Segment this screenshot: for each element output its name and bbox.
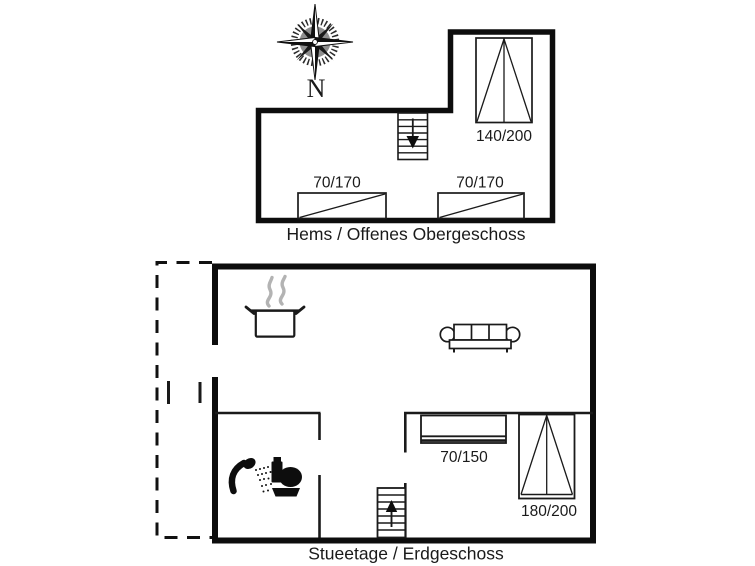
bed-size-label: 70/170 — [456, 175, 504, 192]
shower-spray-dots — [255, 466, 272, 493]
upper-floor-caption: Hems / Offenes Obergeschoss — [287, 224, 526, 244]
ground-floor-plan: 70/150 180/200 Stueetage / Erdgeschoss — [157, 263, 593, 564]
bed-double-180x200: 180/200 — [519, 415, 577, 521]
bed-single-right-70x170: 70/170 — [438, 175, 524, 219]
north-label: N — [307, 74, 326, 103]
bed-bunk-70x150: 70/150 — [421, 416, 506, 467]
steam-icon — [267, 277, 285, 307]
compass-cardinal-points — [277, 4, 353, 80]
toilet-icon — [272, 457, 303, 497]
compass-rose-icon: N — [277, 4, 353, 103]
bed-size-label: 70/170 — [313, 175, 361, 192]
floor-plan-drawing: N 140/200 — [0, 0, 755, 566]
sofa-icon — [440, 325, 519, 353]
door-opening-marks — [169, 381, 201, 404]
stairs-up — [378, 488, 406, 538]
floor-plan-page: N 140/200 — [0, 0, 755, 566]
ground-floor-caption: Stueetage / Erdgeschoss — [308, 544, 504, 564]
terrace-dashed-outline — [157, 263, 212, 538]
shower-icon — [232, 456, 272, 493]
upper-floor-plan: 140/200 70/170 70/170 Hems / Offenes Obe… — [259, 32, 553, 244]
bed-double-140x200: 140/200 — [476, 38, 532, 145]
bed-size-label: 140/200 — [476, 128, 532, 145]
bed-size-label: 70/150 — [440, 449, 488, 466]
bed-single-left-70x170: 70/170 — [298, 175, 386, 219]
cooking-pot-icon — [246, 277, 304, 337]
bed-size-label: 180/200 — [521, 503, 577, 520]
stairs-down — [398, 113, 428, 160]
